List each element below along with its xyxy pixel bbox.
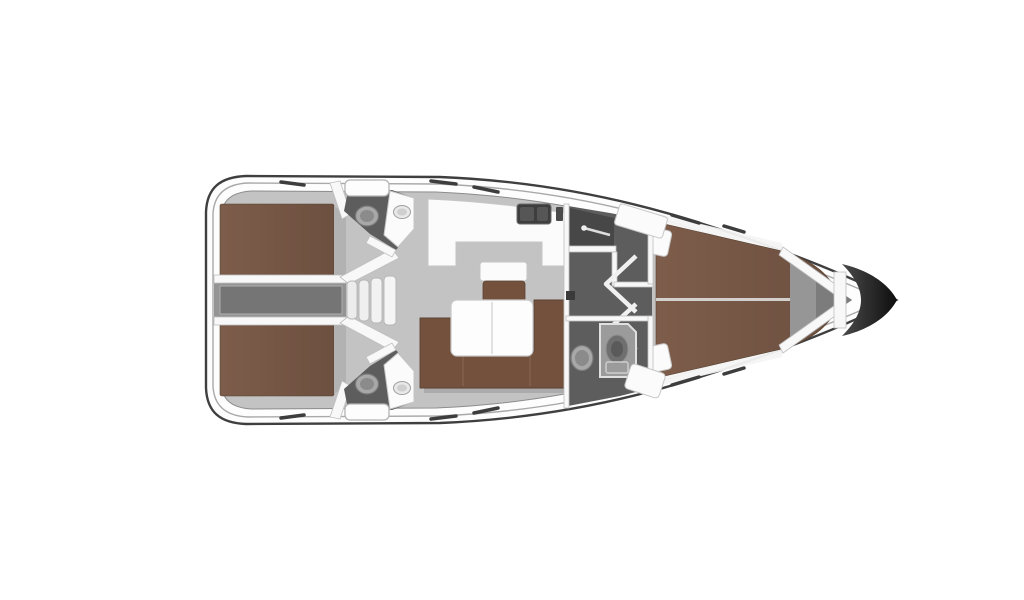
engine-corridor (214, 275, 346, 325)
galley-stove (556, 207, 563, 221)
head-wall-cross (614, 282, 653, 287)
hanger-rod-knob (581, 225, 587, 231)
sink-basin-inner (397, 208, 407, 215)
toilet-bowl (360, 210, 374, 222)
toilet-room-wall (566, 316, 652, 321)
bow-bulkhead-bar (834, 272, 846, 328)
double-berth-port (220, 204, 334, 278)
sink-basin-inner (397, 384, 407, 391)
toilet-bowl (575, 350, 589, 366)
deck-hatch-port (345, 180, 389, 196)
toilet-bowl (360, 378, 374, 390)
corridor-wall-bottom (214, 317, 346, 325)
head-wall-mid (612, 252, 617, 286)
stair-step (371, 278, 382, 323)
stair-step (384, 276, 396, 325)
wardrobe-wall (568, 246, 616, 252)
corridor-wall-top (214, 275, 346, 283)
floor-plan-canvas (0, 0, 1024, 600)
stair-step (347, 281, 357, 319)
galley-sink-basin (520, 207, 534, 221)
salon-stool-top (480, 262, 527, 281)
sofa-shadow (424, 388, 566, 393)
engine-hatch (220, 286, 342, 314)
door-handle (566, 291, 575, 300)
double-berth-starboard (220, 322, 334, 396)
shower-drain-inner (611, 341, 623, 357)
head-wall-left (564, 204, 569, 408)
stair-step (359, 280, 369, 321)
deck-hatch-starboard (345, 404, 389, 420)
galley-sink-basin (537, 207, 548, 221)
salon-stool-seat (483, 281, 525, 302)
yacht-floor-plan (0, 0, 1024, 600)
